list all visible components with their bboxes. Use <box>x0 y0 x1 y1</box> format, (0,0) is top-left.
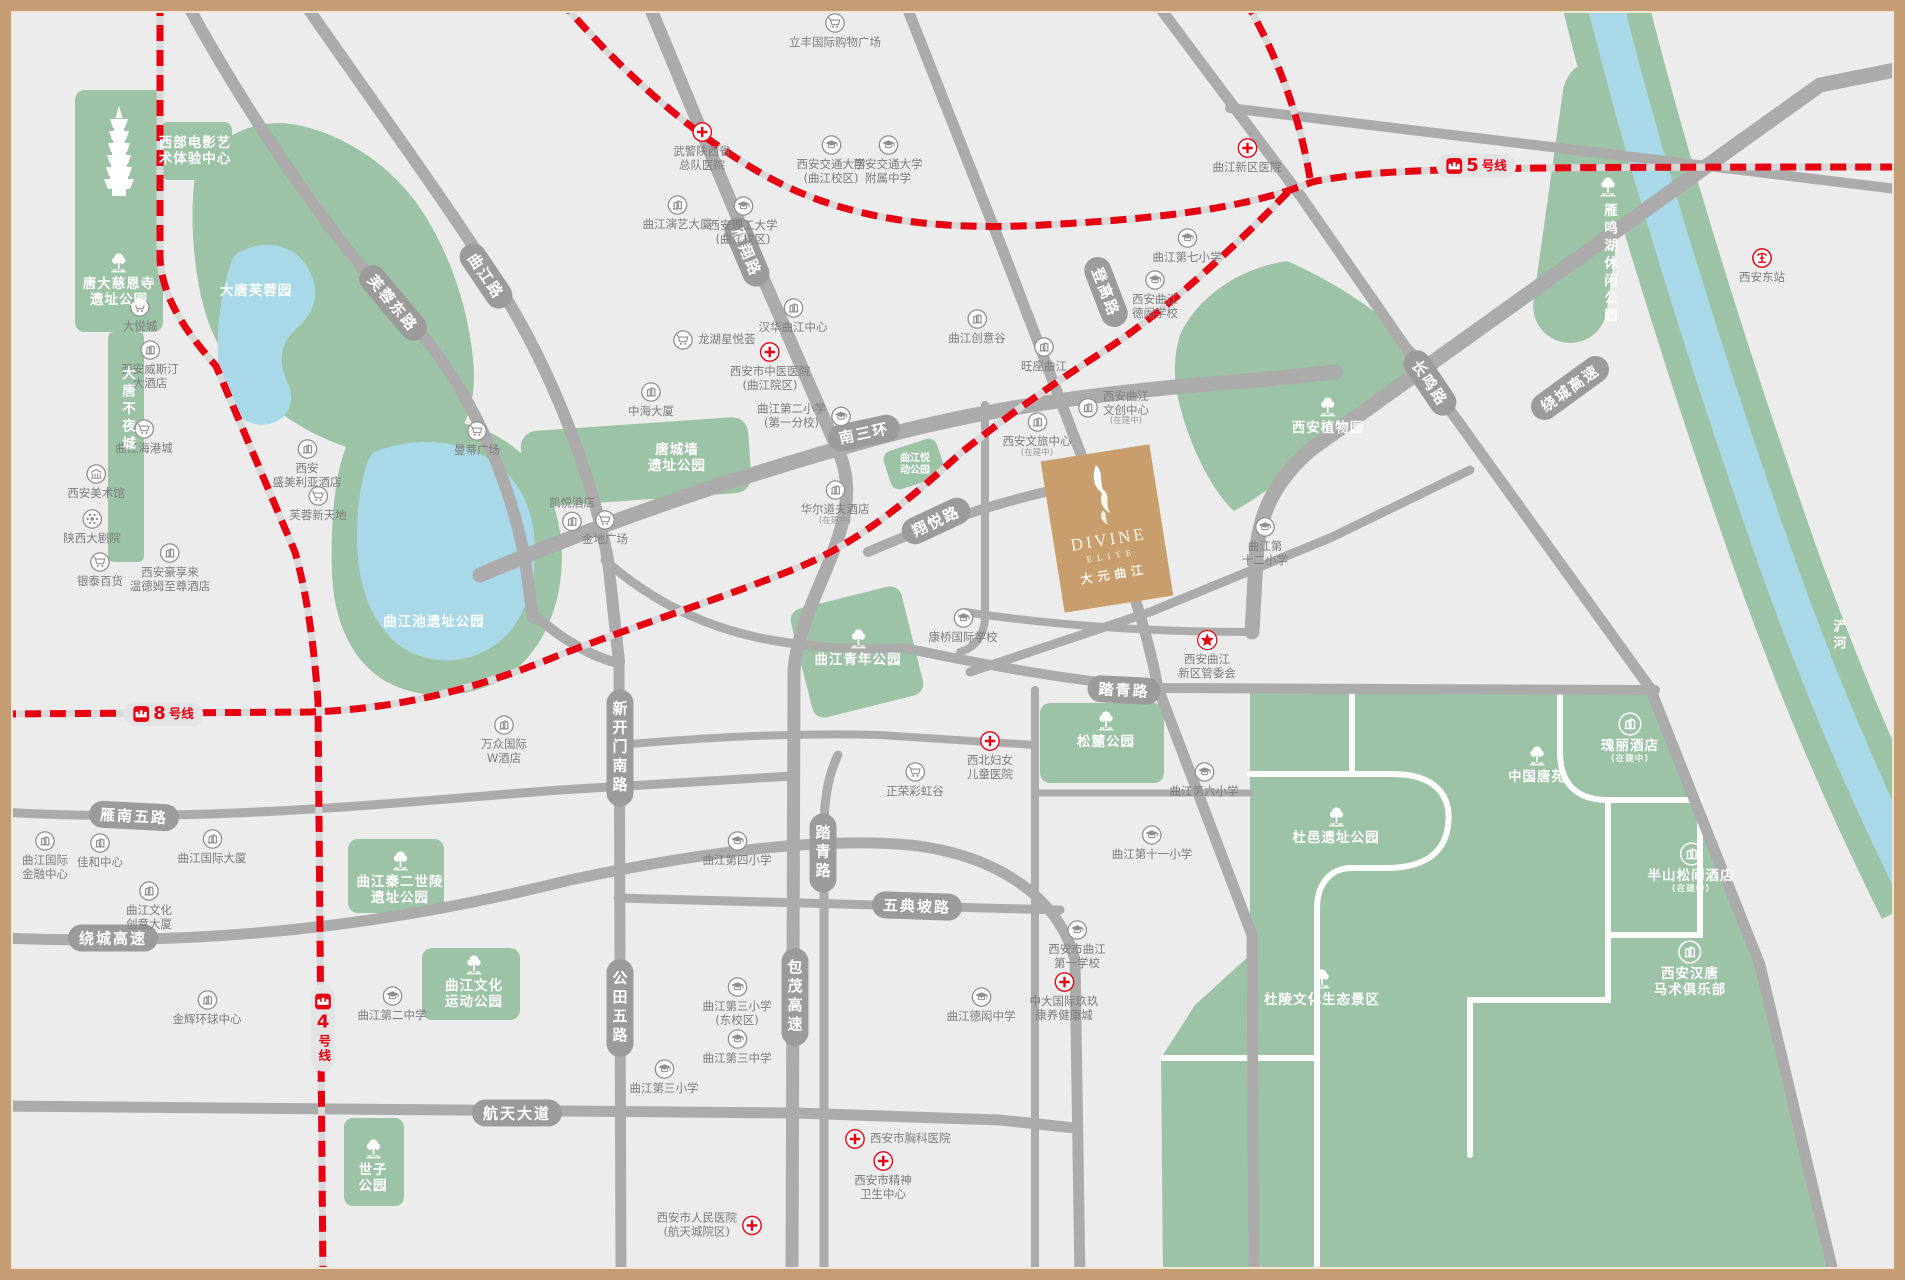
tree-icon <box>106 249 132 275</box>
bldg-icon <box>640 381 662 403</box>
poi-label: 曲江第七小学 <box>1153 251 1222 265</box>
poi-label: 曲江文化创意大厦 <box>126 904 172 931</box>
school-icon <box>830 405 852 427</box>
poi-label: 曲江悦动公园 <box>900 453 930 477</box>
tree-icon <box>1315 393 1341 419</box>
map-poi[interactable]: 大唐不夜城 <box>118 362 134 454</box>
bldg-icon <box>1617 711 1643 737</box>
hosp-icon <box>741 1214 763 1236</box>
poi-label: 康桥国际学校 <box>929 631 998 645</box>
map-poi[interactable]: 唐大慈恩寺遗址公园 <box>83 249 156 309</box>
school-icon <box>653 1058 675 1080</box>
hosp-icon <box>844 1128 866 1150</box>
poi-label: 半山松间酒店(在建中) <box>1648 869 1735 894</box>
divine-name-cn: 大元曲江 <box>1079 560 1149 587</box>
bldg-icon <box>196 989 218 1011</box>
poi-label: 陕西大剧院 <box>63 532 121 546</box>
poi-label: 西安市人民医院(航天城院区) <box>657 1211 738 1238</box>
poi-label: 中国唐苑 <box>1508 770 1566 786</box>
theater-icon <box>81 508 103 530</box>
school-icon <box>1254 516 1276 538</box>
poi-label: 西安文旅中心(在建中) <box>1003 435 1072 458</box>
poi-label: 杜邑遗址公园 <box>1293 831 1380 847</box>
map-poi[interactable]: 康桥国际学校 <box>929 607 998 645</box>
map-poi[interactable]: 芙蓉新天地 <box>289 485 347 523</box>
metro-line-number: 4 <box>317 1014 330 1032</box>
poi-label: 中大国际玖玖康养健康城 <box>1030 995 1099 1022</box>
poi-label: 凯悦酒店 <box>549 496 595 510</box>
metro-line-badge: 8号线 <box>123 702 203 726</box>
poi-label: 旺座曲江 <box>1021 360 1067 374</box>
road-label: 新开门南路 <box>607 690 634 807</box>
poi-label: 西安曲江德闳学校 <box>1132 293 1178 320</box>
poi-label: 武警陕西省总队医院 <box>673 145 731 172</box>
poi-label: 曲江创意谷 <box>948 332 1006 346</box>
tree-icon <box>1309 965 1335 991</box>
map-poi[interactable]: 松麓公园 <box>1077 707 1135 751</box>
school-icon <box>1066 919 1088 941</box>
hosp-icon <box>1053 971 1075 993</box>
map-poi[interactable]: 西安交通大学附属中学 <box>854 134 923 185</box>
map-poi[interactable]: 曲江青年公园 <box>815 625 902 669</box>
road-label: 五典坡路 <box>872 891 963 921</box>
map-poi[interactable]: 万众国际W酒店 <box>481 714 527 765</box>
bldg-icon <box>493 714 515 736</box>
bldg-icon <box>89 832 111 854</box>
road-label: 浐河 <box>1829 619 1848 653</box>
poi-label: 西安汉唐马术俱乐部 <box>1654 967 1727 999</box>
bldg-icon <box>666 194 688 216</box>
bldg-icon <box>824 479 846 501</box>
metro-line-suffix: 号线 <box>169 708 194 721</box>
map-poi[interactable]: 西安市中医医院(曲江院区) <box>730 341 811 392</box>
map-poi[interactable]: 旺座曲江 <box>1021 336 1067 374</box>
poi-label: 西安美术馆 <box>67 487 125 501</box>
map-poi[interactable]: 立丰国际购物广场 <box>789 12 881 50</box>
poi-label: 曲江国际大厦 <box>178 852 247 866</box>
map-poi[interactable]: 曲江第十一小学 <box>1112 824 1193 862</box>
poi-label: 松麓公园 <box>1077 735 1135 751</box>
map-poi[interactable]: 曲江第六小学 <box>1170 761 1239 799</box>
road-label: 包茂高速 <box>782 948 809 1046</box>
school-icon <box>732 195 754 217</box>
poi-label: 万众国际W酒店 <box>481 738 527 765</box>
map-poi[interactable]: 西安文旅中心(在建中) <box>1003 411 1072 458</box>
bldg-icon <box>201 828 223 850</box>
poi-label: 曲江池遗址公园 <box>383 615 485 631</box>
poi-label: 瑰丽酒店(在建中) <box>1601 739 1659 764</box>
poi-label: 大悦城 <box>123 320 158 334</box>
metro-line-suffix: 号线 <box>317 1035 330 1064</box>
poi-label: 唐大慈恩寺遗址公园 <box>83 277 156 309</box>
map-poi[interactable]: 西部电影艺术体验中心 <box>159 134 232 168</box>
poi-label: 曲江第三中学 <box>703 1052 772 1066</box>
poi-sublabel: (在建中) <box>801 517 870 526</box>
poi-label: 雁鸣湖休闲公园 <box>1600 203 1616 326</box>
tree-icon <box>1524 742 1550 768</box>
map-poi[interactable]: 西安盛美利亚酒店 <box>273 438 342 489</box>
tree-icon <box>845 625 871 651</box>
map-poi[interactable]: 半山松间酒店(在建中) <box>1648 841 1735 894</box>
bldg-icon <box>138 880 160 902</box>
bldg-icon <box>296 438 318 460</box>
map-poi[interactable]: 西安曲江新区管委会 <box>1178 629 1236 680</box>
map-poi[interactable]: 曲江创意谷 <box>948 308 1006 346</box>
map-poi[interactable]: 中国唐苑 <box>1508 742 1566 786</box>
star-icon <box>1196 629 1218 651</box>
tree-icon <box>1323 803 1349 829</box>
hosp-icon <box>759 341 781 363</box>
poi-label: 曲江演艺大厦 <box>643 218 712 232</box>
map-poi[interactable]: 曲江国际大厦 <box>178 828 247 866</box>
poi-label: 芙蓉新天地 <box>289 509 347 523</box>
map-poi[interactable]: 中大国际玖玖康养健康城 <box>1030 971 1099 1022</box>
map-poi[interactable]: 曲江秦二世陵遗址公园 <box>357 847 444 907</box>
map-poi[interactable]: 武警陕西省总队医院 <box>673 121 731 172</box>
school-icon <box>970 986 992 1008</box>
hosp-icon <box>979 730 1001 752</box>
poi-label: 曲江第十二小学 <box>1242 540 1288 567</box>
poi-label: 大唐不夜城 <box>118 366 134 454</box>
map-poi[interactable]: 曲江第三小学(东校区) <box>703 976 772 1027</box>
map-poi[interactable]: 西北妇女儿童医院 <box>967 730 1013 781</box>
map-poi[interactable]: 曲江第三中学 <box>703 1028 772 1066</box>
poi-label: 正荣彩虹谷 <box>886 785 944 799</box>
metro-line-badge: 5号线 <box>1436 154 1516 178</box>
map-poi[interactable]: 华尔道夫酒店(在建中) <box>801 479 870 526</box>
poi-label: 立丰国际购物广场 <box>789 36 881 50</box>
poi-label: 曲江秦二世陵遗址公园 <box>357 875 444 907</box>
bldg-icon <box>159 542 181 564</box>
school-icon <box>726 976 748 998</box>
map-poi[interactable]: 西安豪享来温德姆至尊酒店 <box>130 542 211 593</box>
metro-line-badge: 4号线 <box>311 985 335 1072</box>
road-label: 踏青路 <box>1087 675 1161 706</box>
bldg-icon <box>34 830 56 852</box>
bldg-icon <box>139 339 161 361</box>
hosp-icon <box>691 121 713 143</box>
metro-logo-icon <box>314 993 332 1011</box>
poi-label: 中海大厦 <box>628 405 674 419</box>
school-icon <box>726 1028 748 1050</box>
poi-label: 西安市精神卫生中心 <box>854 1174 912 1201</box>
poi-label: 曲江第三小学 <box>630 1082 699 1096</box>
poi-sublabel: (在建中) <box>1648 885 1735 894</box>
map-poi[interactable]: 曲江第二中学 <box>358 985 427 1023</box>
map-poi[interactable]: 西安市人民医院(航天城院区) <box>657 1211 764 1238</box>
hosp-icon <box>872 1150 894 1172</box>
poi-label: 曲江德闳中学 <box>947 1010 1016 1024</box>
poi-label: 西安市胸科医院 <box>870 1132 951 1146</box>
poi-label: 西安植物园 <box>1292 421 1365 437</box>
road-label: 航天大道 <box>472 1100 562 1127</box>
bldg-icon <box>966 308 988 330</box>
bldg-icon <box>1033 336 1055 358</box>
map-canvas[interactable]: DIVINE ELITE 大元曲江 芙蓉东路曲江路雁翔路登高路长鸣路南三环绕城高… <box>0 0 1905 1280</box>
school-icon <box>381 985 403 1007</box>
map-poi[interactable]: 金辉环球中心 <box>173 989 242 1027</box>
museum-icon <box>85 463 107 485</box>
tree-icon <box>461 951 487 977</box>
cart-icon <box>672 329 694 351</box>
map-poi[interactable]: 曲江第七小学 <box>1153 227 1222 265</box>
metro-line-suffix: 号线 <box>1482 160 1507 173</box>
map-poi[interactable]: 西安植物园 <box>1292 393 1365 437</box>
cart-icon <box>89 551 111 573</box>
poi-label: 西安理工大学(曲江校区) <box>709 219 778 246</box>
map-poi[interactable]: 汉华曲江中心 <box>759 297 828 335</box>
poi-label: 曲江第十一小学 <box>1112 848 1193 862</box>
map-poi[interactable]: 曲江悦动公园 <box>900 451 930 477</box>
poi-label: 西安东站 <box>1739 271 1785 285</box>
map-poi[interactable]: 杜邑遗址公园 <box>1293 803 1380 847</box>
map-poi[interactable]: 曲江文化运动公园 <box>445 951 503 1011</box>
map-poi[interactable]: 曼蒂广场 <box>454 420 500 458</box>
map-poi[interactable]: 曲江第十二小学 <box>1242 516 1288 567</box>
school-icon <box>1176 227 1198 249</box>
poi-sublabel: (在建中) <box>1601 755 1659 764</box>
bldg-icon <box>561 510 583 532</box>
map-poi[interactable]: 西安市精神卫生中心 <box>854 1150 912 1201</box>
map-poi[interactable]: 曲江第三小学 <box>630 1058 699 1096</box>
metro-logo-icon <box>132 705 150 723</box>
map-poi[interactable]: 曲江国际金融中心 <box>22 830 68 881</box>
bldg-icon <box>782 297 804 319</box>
divine-logo-icon <box>1082 462 1121 528</box>
map-poi[interactable]: 曲江第四小学 <box>703 830 772 868</box>
road-wudianpo <box>618 898 1060 910</box>
poi-label: 西安曲江文创中心(在建中) <box>1103 390 1149 426</box>
metro-line-number: 5 <box>1466 157 1479 175</box>
poi-label: 杜陵文化生态景区 <box>1264 993 1380 1009</box>
road-label: 公田五路 <box>607 959 634 1057</box>
poi-label: 金辉环球中心 <box>173 1013 242 1027</box>
cart-icon <box>594 509 616 531</box>
map-poi[interactable]: 佳和中心 <box>77 832 123 870</box>
road-label: 雁南五路 <box>88 800 179 832</box>
cart-icon <box>466 420 488 442</box>
map-poi[interactable]: 瑰丽酒店(在建中) <box>1601 711 1659 764</box>
map-poi[interactable]: 陕西大剧院 <box>63 508 121 546</box>
map-poi[interactable]: 西安曲江德闳学校 <box>1132 269 1178 320</box>
poi-label: 银泰百货 <box>77 575 123 589</box>
poi-label: 曲江第二中学 <box>358 1009 427 1023</box>
map-poi[interactable]: 曲江池遗址公园 <box>383 613 485 631</box>
poi-label: 西安豪享来温德姆至尊酒店 <box>130 566 211 593</box>
poi-label: 曲江国际金融中心 <box>22 854 68 881</box>
map-poi[interactable]: 西安东站 <box>1739 247 1785 285</box>
school-icon <box>820 134 842 156</box>
school-icon <box>952 607 974 629</box>
map-poi[interactable]: 杜陵文化生态景区 <box>1264 965 1380 1009</box>
poi-label: 西安市中医医院(曲江院区) <box>730 365 811 392</box>
map-poi[interactable]: 曲江德闳中学 <box>947 986 1016 1024</box>
school-icon <box>877 134 899 156</box>
road-label: 踏青路 <box>810 814 837 893</box>
metro-line-number: 8 <box>153 705 166 723</box>
bldg-icon <box>1077 397 1099 419</box>
cart-icon <box>307 485 329 507</box>
map-poi[interactable]: 曲江演艺大厦 <box>643 194 712 232</box>
poi-label: 曲江第二小学(第一分校) <box>757 402 826 429</box>
hosp-icon <box>1236 137 1258 159</box>
map-poi[interactable]: 大唐芙蓉园 <box>220 282 293 300</box>
poi-label: 世子公园 <box>359 1163 388 1195</box>
poi-label: 曼蒂广场 <box>454 444 500 458</box>
poi-sublabel: (在建中) <box>1103 417 1149 426</box>
tree-icon <box>387 847 413 873</box>
map-poi[interactable]: 世子公园 <box>359 1135 388 1195</box>
poi-label: 曲江青年公园 <box>815 653 902 669</box>
map-poi[interactable]: 曲江第二小学(第一分校) <box>757 402 852 429</box>
poi-sublabel: (在建中) <box>1003 449 1072 458</box>
poi-label: 西部电影艺术体验中心 <box>159 136 232 168</box>
poi-label: 佳和中心 <box>77 856 123 870</box>
map-poi[interactable]: 曲江文化创意大厦 <box>126 880 172 931</box>
poi-label: 曲江第四小学 <box>703 854 772 868</box>
map-poi[interactable]: 银泰百货 <box>77 551 123 589</box>
map-poi[interactable]: 西安曲江文创中心(在建中) <box>1077 390 1149 426</box>
tree-icon <box>360 1135 386 1161</box>
school-icon <box>1144 269 1166 291</box>
map-poi[interactable]: 唐城墙遗址公园 <box>648 441 706 475</box>
poi-label: 金地广场 <box>582 533 628 547</box>
tree-icon <box>1093 707 1119 733</box>
poi-label: 大唐芙蓉园 <box>220 284 293 300</box>
map-poi[interactable]: 西安市胸科医院 <box>844 1128 951 1150</box>
school-icon <box>726 830 748 852</box>
map-poi[interactable]: 雁鸣湖休闲公园 <box>1595 173 1621 326</box>
bldg-icon <box>1678 841 1704 867</box>
map-poi[interactable]: 正荣彩虹谷 <box>886 761 944 799</box>
metro-logo-icon <box>1445 157 1463 175</box>
school-icon <box>1141 824 1163 846</box>
map-poi[interactable]: 西安理工大学(曲江校区) <box>709 195 778 246</box>
poi-label: 西安曲江新区管委会 <box>1178 653 1236 680</box>
poi-label: 西安交通大学附属中学 <box>854 158 923 185</box>
bldg-icon <box>1026 411 1048 433</box>
bldg-icon <box>1677 939 1703 965</box>
poi-label: 西北妇女儿童医院 <box>967 754 1013 781</box>
map-poi[interactable]: 曲江新区医院 <box>1213 137 1282 175</box>
map-poi[interactable]: 中海大厦 <box>628 381 674 419</box>
school-icon <box>1193 761 1215 783</box>
poi-label: 汉华曲江中心 <box>759 321 828 335</box>
cart-icon <box>824 12 846 34</box>
tree-icon <box>1595 173 1621 199</box>
train-icon <box>1751 247 1773 269</box>
cart-icon <box>904 761 926 783</box>
map-poi[interactable]: 西安美术馆 <box>67 463 125 501</box>
divine-elite-block[interactable]: DIVINE ELITE 大元曲江 <box>1041 444 1174 612</box>
cart-icon <box>133 418 155 440</box>
poi-label: 唐城墙遗址公园 <box>648 443 706 475</box>
poi-label: 曲江文化运动公园 <box>445 979 503 1011</box>
map-poi[interactable]: 西安汉唐马术俱乐部 <box>1654 939 1727 999</box>
poi-label: 曲江第六小学 <box>1170 785 1239 799</box>
poi-label: 华尔道夫酒店(在建中) <box>801 503 870 526</box>
poi-label: 曲江新区医院 <box>1213 161 1282 175</box>
map-poi[interactable]: 金地广场 <box>582 509 628 547</box>
map-poi[interactable]: 西安市曲江第一学校 <box>1048 919 1106 970</box>
poi-label: 西安市曲江第一学校 <box>1048 943 1106 970</box>
poi-label: 曲江第三小学(东校区) <box>703 1000 772 1027</box>
